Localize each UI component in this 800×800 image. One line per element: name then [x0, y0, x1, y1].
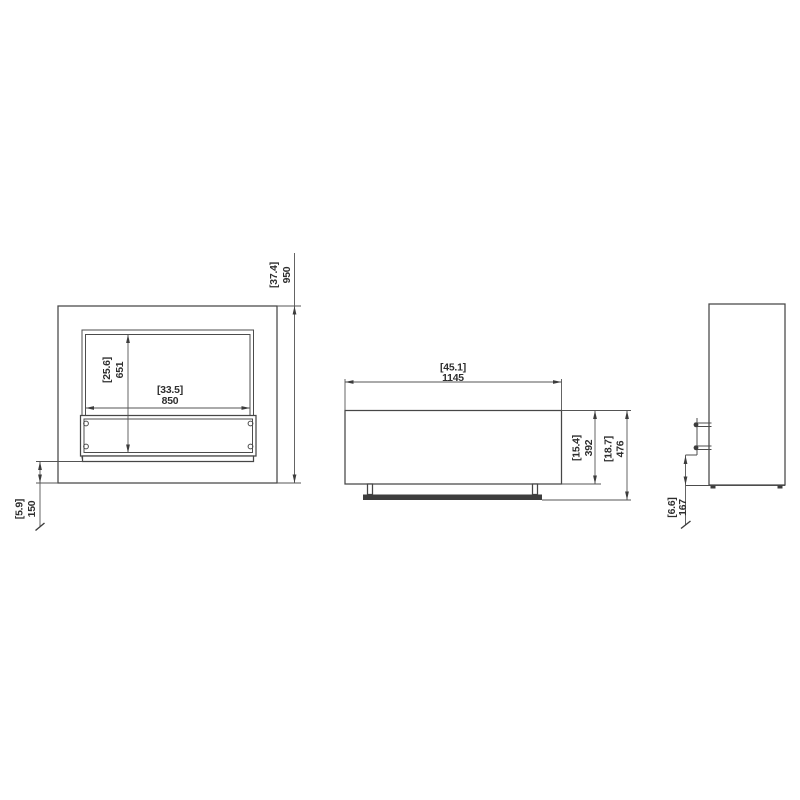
burner-leg-left	[368, 484, 373, 495]
side-view: [6.6] 167	[667, 304, 785, 529]
side-pin-head-top	[694, 422, 699, 427]
front-opening-width-inches-label: [33.5]	[157, 385, 183, 396]
front-overall-height-inches-label: [37.4]	[269, 262, 280, 288]
dim-front-plinth-height: [5.9] 150	[15, 462, 83, 531]
side-base-offset-inches-label: [6.6]	[667, 497, 678, 517]
dim-front-overall-height: [37.4] 950	[269, 253, 301, 483]
front-plinth-height-inches-label: [5.9]	[15, 499, 26, 519]
side-pin-head-bottom	[694, 445, 699, 450]
burner-body-height-inches-label: [15.4]	[572, 435, 583, 461]
burner-overall-height-inches-label: [18.7]	[604, 436, 615, 462]
front-opening-width-mm-label: 850	[162, 396, 179, 407]
burner-tray	[81, 416, 257, 457]
front-view: [37.4] 950 [25.6] 651 [33.5] 850 [5.9] 1	[15, 253, 301, 531]
front-plinth-height-mm-label: 150	[27, 500, 38, 517]
front-opening-height-inches-label: [25.6]	[102, 357, 113, 383]
side-body	[709, 304, 785, 485]
front-overall-height-mm-label: 950	[282, 266, 293, 283]
dim-front-opening-width: [33.5] 850	[86, 385, 251, 410]
side-foot-left	[711, 486, 716, 489]
burner-width-mm-label: 1145	[442, 373, 464, 384]
side-base-offset-mm-label: 167	[678, 499, 689, 516]
dim-burner-width: [45.1] 1145	[345, 363, 562, 411]
burner-body	[345, 411, 562, 485]
front-opening-height-mm-label: 651	[115, 361, 126, 378]
side-foot-right	[778, 486, 783, 489]
tray-bottom-strip	[83, 456, 254, 462]
dim-burner-body-height: [15.4] 392	[562, 411, 602, 485]
burner-leg-right	[533, 484, 538, 495]
technical-drawing-canvas: [37.4] 950 [25.6] 651 [33.5] 850 [5.9] 1	[0, 0, 800, 800]
burner-width-inches-label: [45.1]	[440, 363, 466, 374]
dim-side-base-offset: [6.6] 167	[667, 455, 690, 529]
dimension-drawing: [37.4] 950 [25.6] 651 [33.5] 850 [5.9] 1	[0, 0, 800, 800]
burner-front-view: [45.1] 1145 [15.4] 392 [18.7] 476	[345, 363, 631, 501]
burner-base-bar	[363, 495, 542, 501]
burner-body-height-mm-label: 392	[584, 439, 595, 456]
burner-overall-height-mm-label: 476	[616, 440, 627, 457]
